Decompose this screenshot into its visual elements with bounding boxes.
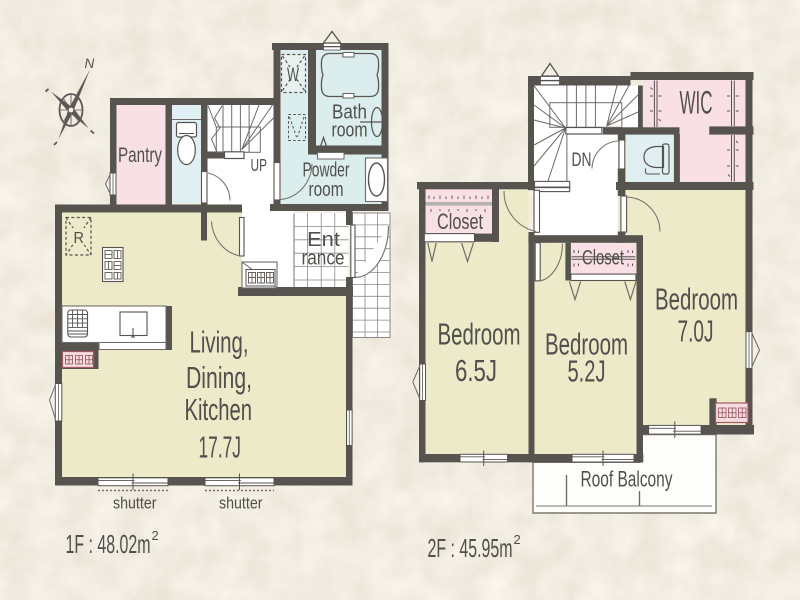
- svg-text:R: R: [74, 230, 85, 247]
- svg-text:17.7J: 17.7J: [199, 430, 242, 465]
- svg-text:Roof Balcony: Roof Balcony: [581, 467, 673, 492]
- svg-text:7.0J: 7.0J: [678, 314, 714, 349]
- svg-text:2F : 45.95m: 2F : 45.95m: [428, 533, 513, 563]
- svg-text:5.2J: 5.2J: [568, 354, 606, 389]
- svg-text:Living,: Living,: [190, 325, 249, 360]
- svg-text:shutter: shutter: [113, 494, 157, 513]
- svg-text:UP: UP: [251, 155, 268, 175]
- svg-text:N: N: [85, 56, 95, 71]
- svg-text:2: 2: [152, 528, 159, 543]
- svg-text:Bedroom: Bedroom: [655, 282, 738, 317]
- svg-text:DN: DN: [572, 150, 592, 171]
- svg-text:Pantry: Pantry: [118, 144, 162, 167]
- svg-text:Dining,: Dining,: [186, 360, 252, 395]
- svg-text:room: room: [332, 120, 368, 142]
- svg-text:Bedroom: Bedroom: [438, 317, 521, 352]
- svg-text:rance: rance: [302, 248, 345, 270]
- svg-text:2: 2: [514, 532, 521, 547]
- svg-text:Kitchen: Kitchen: [185, 392, 253, 427]
- svg-text:room: room: [309, 179, 344, 201]
- svg-text:Closet: Closet: [437, 209, 484, 234]
- svg-text:1F : 48.02m: 1F : 48.02m: [66, 529, 151, 559]
- svg-text:WIC: WIC: [680, 85, 713, 121]
- svg-text:W: W: [287, 65, 299, 86]
- svg-text:shutter: shutter: [219, 494, 263, 513]
- svg-text:Closet: Closet: [582, 247, 624, 270]
- svg-text:6.5J: 6.5J: [455, 353, 497, 388]
